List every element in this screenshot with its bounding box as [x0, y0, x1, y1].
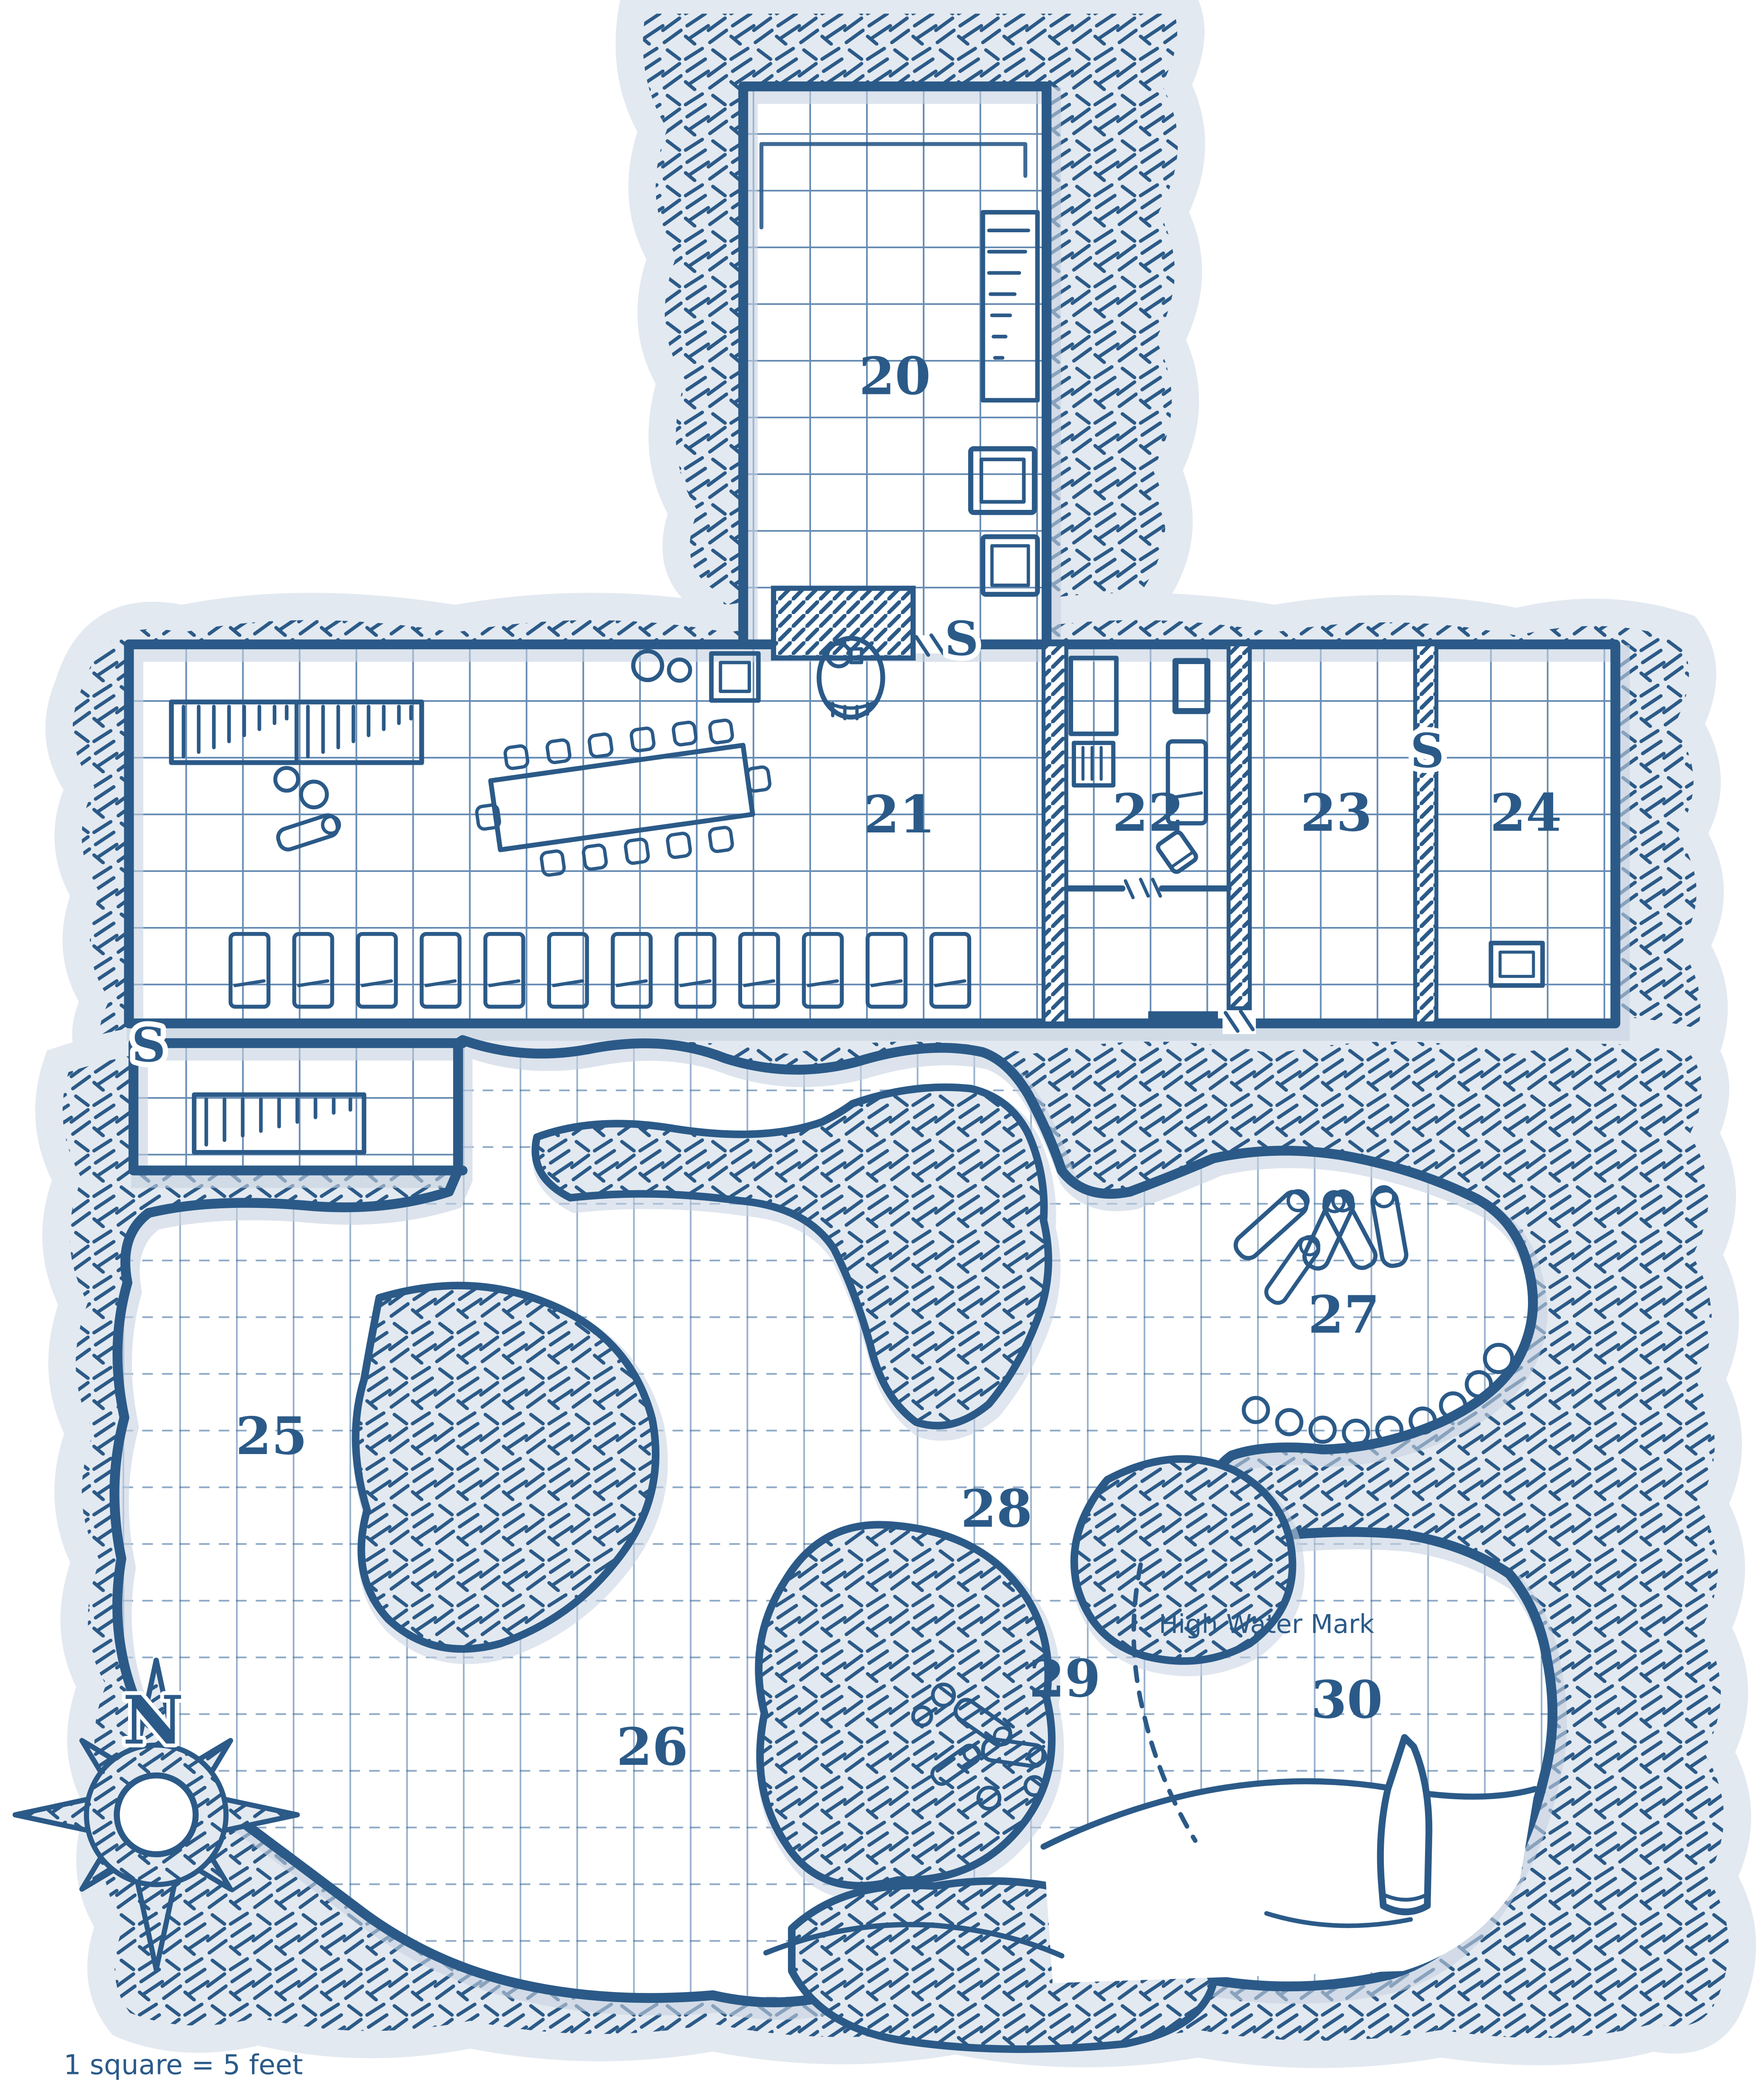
high-water-mark-label: High Water Mark [1159, 1609, 1374, 1639]
room-label-28: 28 [961, 1478, 1032, 1539]
secret-door-label: S [131, 1018, 165, 1073]
room-label-25: 25 [236, 1406, 307, 1466]
room-label-26: 26 [616, 1717, 688, 1777]
dungeon-map-page: N 20 21 22 23 24 25 26 27 28 29 30 S S S… [0, 0, 1764, 2100]
room-label-22: 22 [1112, 782, 1184, 843]
door-bar [1148, 1011, 1218, 1026]
rock-island-center [759, 1525, 1052, 1886]
scale-note: 1 square = 5 feet [64, 2049, 303, 2081]
room-label-24: 24 [1490, 782, 1562, 843]
compass-north-label: N [123, 1681, 184, 1759]
room-label-30: 30 [1311, 1669, 1383, 1730]
room-label-29: 29 [1029, 1648, 1101, 1709]
room-label-21: 21 [864, 784, 935, 845]
room-label-20: 20 [859, 346, 931, 407]
room-label-23: 23 [1300, 782, 1372, 843]
secret-door-label: S [945, 611, 979, 666]
secret-door-label: S [1410, 724, 1444, 779]
hearth-block [774, 588, 913, 658]
room-label-27: 27 [1308, 1284, 1380, 1345]
dungeon-map-canvas: N 20 21 22 23 24 25 26 27 28 29 30 S S S… [0, 0, 1764, 2100]
